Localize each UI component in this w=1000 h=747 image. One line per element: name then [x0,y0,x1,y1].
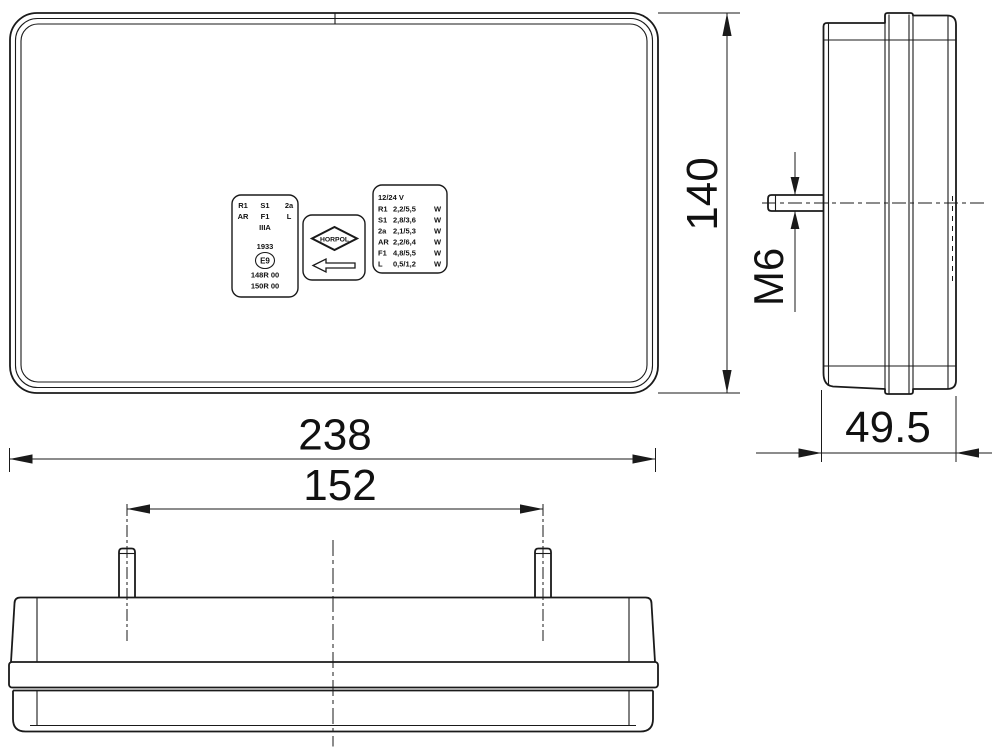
approval-148r: 148R 00 [251,271,279,280]
dim-width-text: 238 [298,411,371,460]
dim-thread-arrow-bottom [791,211,800,229]
approval-f1: F1 [261,212,270,221]
spec-code-4: F1 [378,249,387,258]
front-outline-outer [10,13,658,393]
spec-power-3: 2,2/6,4 [393,238,417,247]
spec-code-1: S1 [378,216,387,225]
brand-label: HORPOL [303,215,365,280]
spec-unit-5: W [434,260,442,269]
spec-power-4: 4,8/5,5 [393,249,416,258]
brand-name: HORPOL [320,237,349,244]
front-outline-inner [21,24,647,382]
approval-r1: R1 [238,201,248,210]
dim-height-arrow-top [722,13,731,36]
dim-thread-arrow-top [791,177,800,195]
spec-unit-1: W [434,216,442,225]
approval-class: IIIA [259,223,271,232]
approval-label: R1 S1 2a AR F1 L IIIA 1933 E9 148R 00 15… [232,195,298,297]
bottom-right-slant [652,604,656,663]
spec-power-5: 0,5/1,2 [393,260,416,269]
spec-unit-4: W [434,249,442,258]
spec-voltage: 12/24 V [378,193,404,202]
spec-code-3: AR [378,238,389,247]
spec-power-1: 2,8/3,6 [393,216,416,225]
dim-depth-text: 49.5 [845,403,931,452]
lamp-technical-drawing: R1 S1 2a AR F1 L IIIA 1933 E9 148R 00 15… [0,0,1000,747]
spec-code-0: R1 [378,205,388,214]
side-view [762,13,988,394]
spec-unit-3: W [434,238,442,247]
spec-unit-0: W [434,205,442,214]
dim-width-arrow-right [633,454,656,463]
dimensions: 140 M6 49.5 238 152 [10,13,993,514]
dim-depth-arrow-right [956,448,979,457]
approval-150r: 150R 00 [251,282,279,291]
dim-spacing-arrow-left [127,504,150,513]
spec-code-2: 2a [378,227,387,236]
approval-2a: 2a [285,201,294,210]
dim-height-arrow-bottom [722,370,731,393]
spec-power-0: 2,2/5,5 [393,205,416,214]
dim-width-arrow-left [10,454,33,463]
front-view [10,13,658,393]
front-outline-mid [16,19,653,388]
spec-unit-2: W [434,227,442,236]
dim-thread-text: M6 [745,248,792,306]
spec-code-5: L [378,260,383,269]
dim-spacing-arrow-right [520,504,543,513]
dim-spacing-text: 152 [303,461,376,510]
dim-height-text: 140 [678,157,727,230]
bottom-left-slant [11,604,15,663]
bottom-view [9,504,658,747]
approval-ar: AR [238,212,249,221]
approval-s1: S1 [260,201,269,210]
e-mark-text: E9 [260,257,270,266]
approval-number: 1933 [257,242,274,251]
approval-l: L [287,212,292,221]
spec-label: 12/24 V R1 2,2/5,5 W S1 2,8/3,6 W 2a 2,1… [373,185,447,273]
drawing-canvas: R1 S1 2a AR F1 L IIIA 1933 E9 148R 00 15… [0,0,1000,747]
dim-depth-arrow-left [799,448,822,457]
spec-power-2: 2,1/5,3 [393,227,416,236]
